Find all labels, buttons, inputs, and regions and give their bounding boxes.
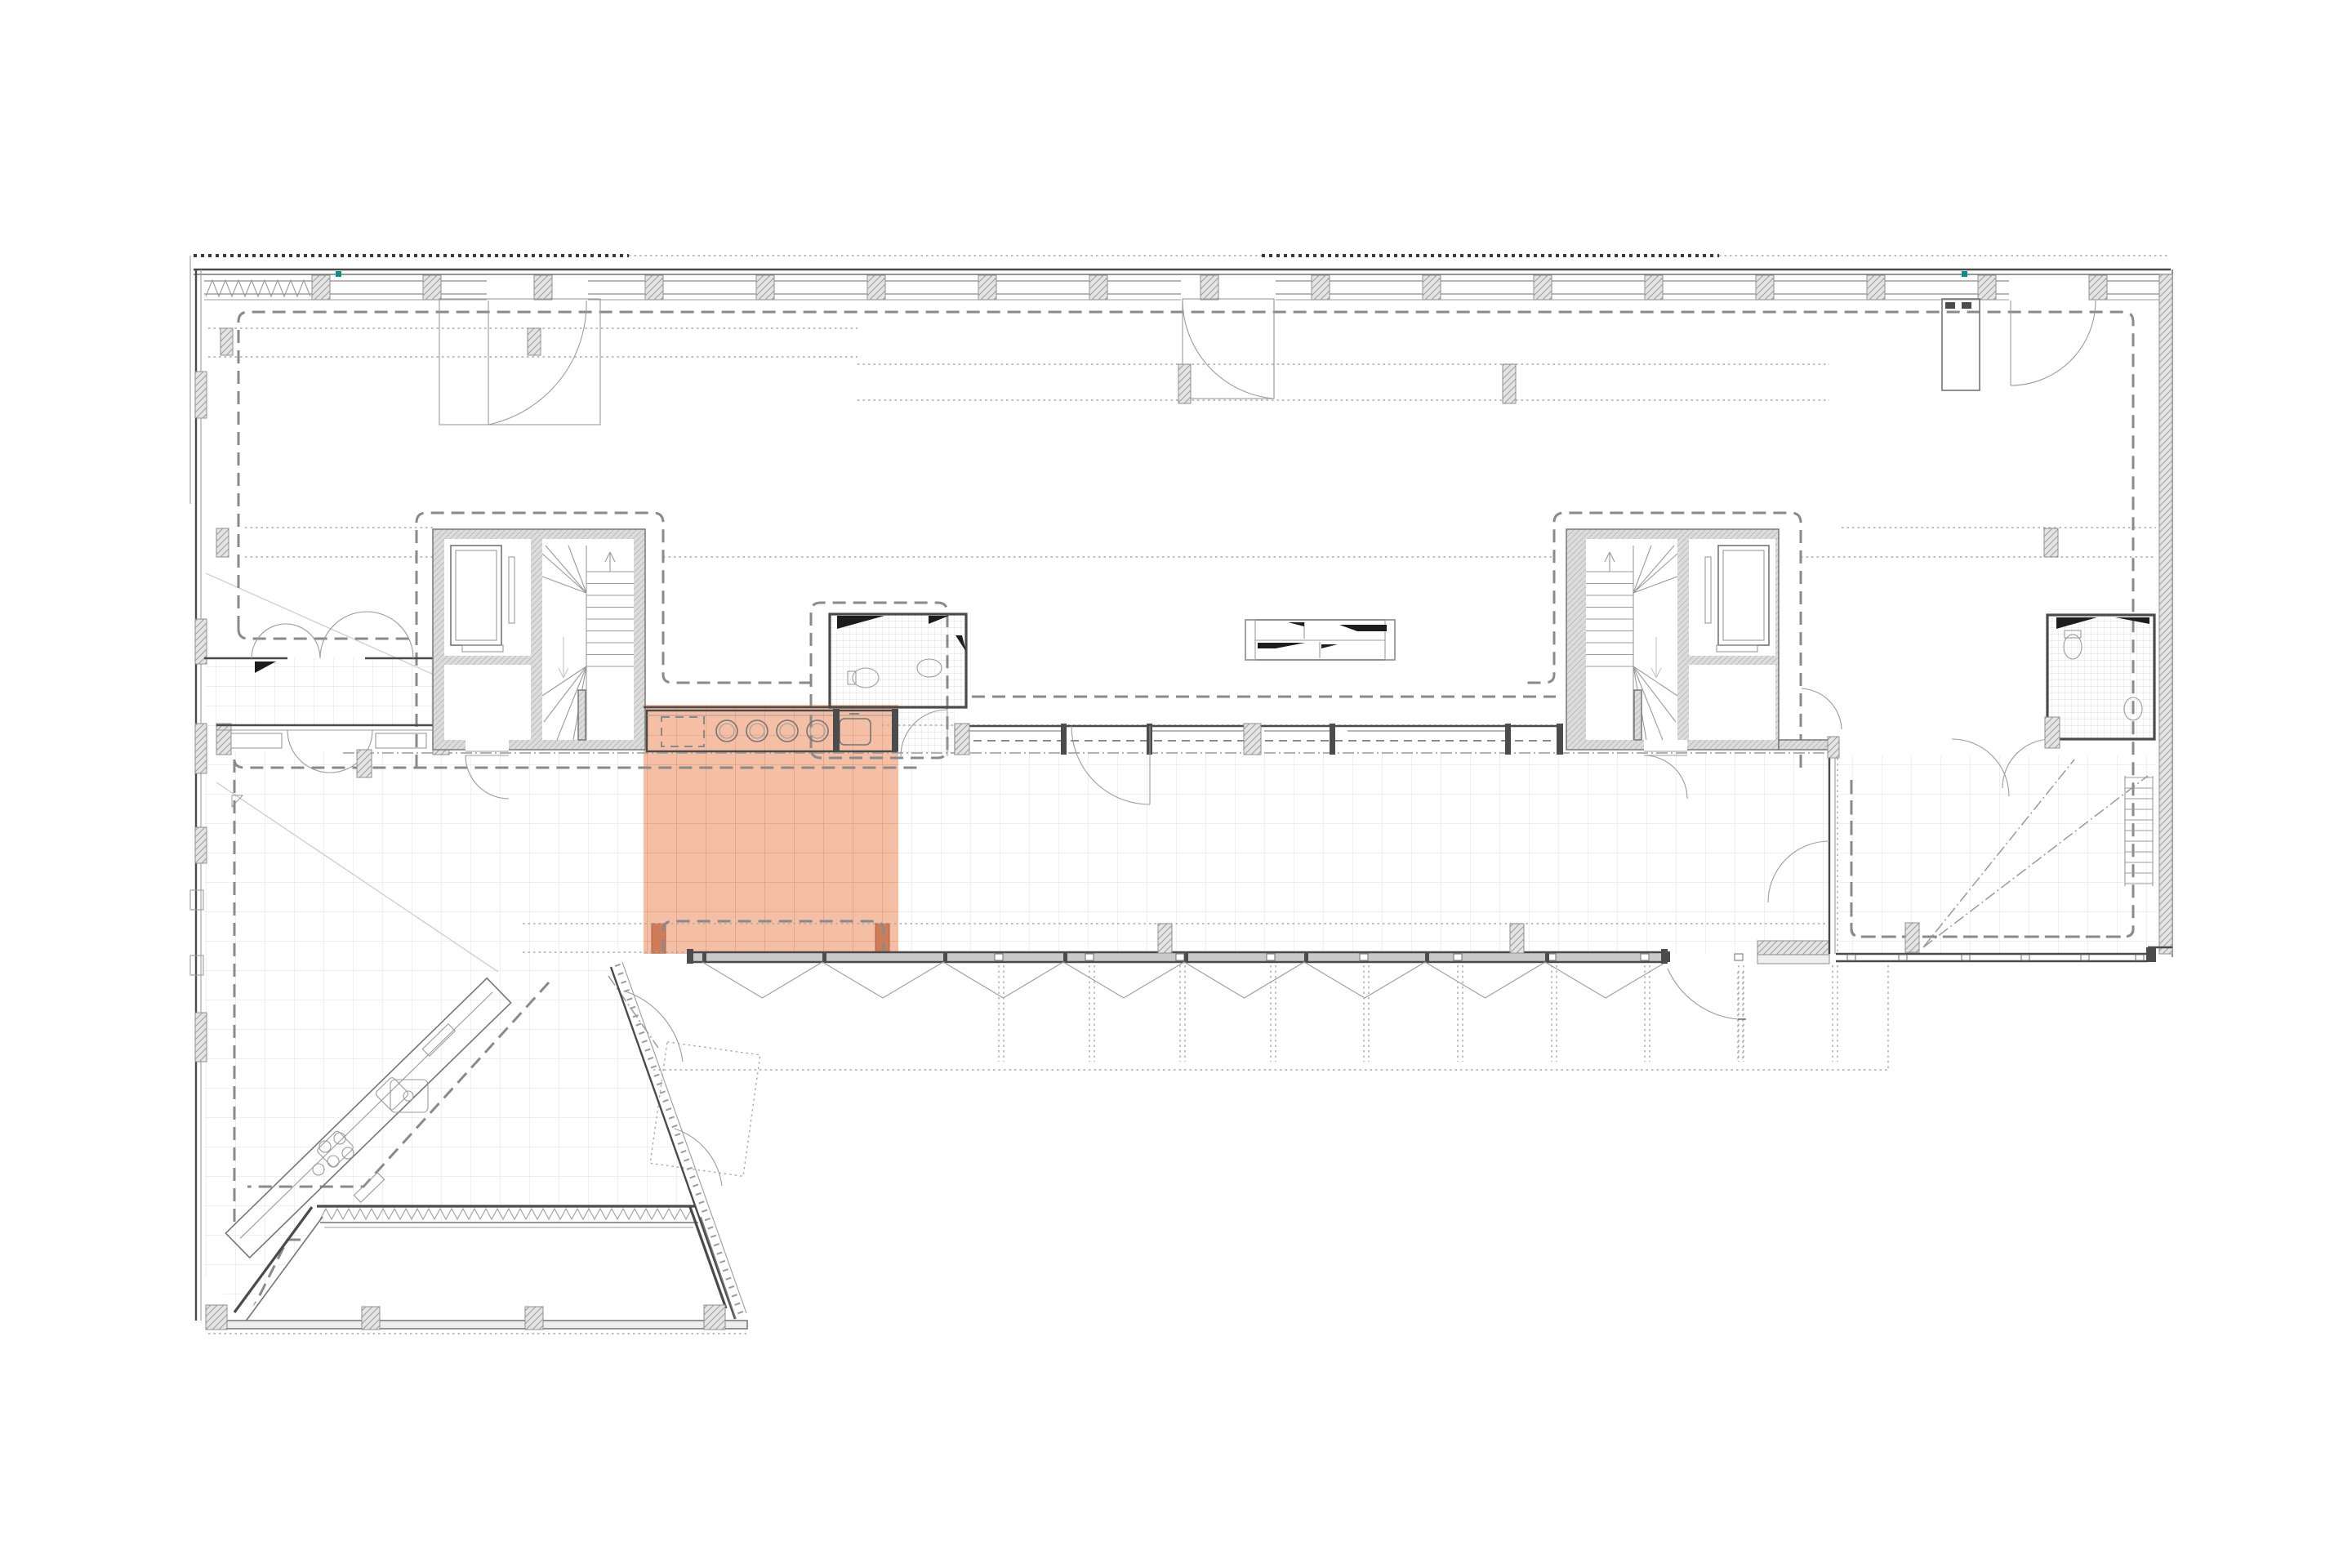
bathroom-tiles	[830, 614, 966, 706]
dashed-upper-left-return	[238, 629, 413, 639]
floor-plan-canvas	[0, 0, 2352, 1568]
terrace-column-1	[362, 1307, 380, 1330]
terrace-south-wall	[214, 1321, 747, 1329]
east-elevator-shaft	[1689, 539, 1775, 656]
teal-survey-marker	[336, 271, 341, 277]
sliding-door-pocket-2	[376, 733, 426, 748]
entry-vestibules	[439, 299, 2096, 425]
balcony-privacy-screens	[999, 965, 1837, 1062]
right-terrace-tiles	[1837, 755, 2156, 954]
sliding-door-pocket-1	[231, 733, 282, 748]
door-swing-up-2	[320, 612, 413, 658]
highlight-grid	[644, 705, 898, 954]
entry-door-swing-east	[2011, 301, 2096, 385]
highlight-area-group	[644, 705, 898, 954]
terrace-corner-column	[206, 1305, 227, 1330]
east-stair-room	[1586, 539, 1677, 740]
teal-survey-marker	[1962, 271, 1967, 277]
west-elevator-shaft	[444, 539, 531, 656]
entry-door-swing-west	[488, 301, 586, 425]
west-core-door-gap	[465, 740, 509, 751]
door-swing-up-1	[252, 624, 320, 658]
terrace-floor	[245, 1223, 724, 1316]
vestibule-mid	[1183, 299, 1274, 399]
floor-plan-drawing	[0, 0, 2352, 1568]
terrace-column-3	[704, 1305, 725, 1330]
folding-door-swings	[702, 962, 1666, 998]
east-hall-door-swing	[1802, 688, 1842, 729]
terrace-column-2	[525, 1307, 543, 1330]
planter-base	[1757, 955, 1829, 964]
balcony-door-swing	[1668, 969, 1738, 1019]
west-corridor-tiles	[206, 658, 448, 727]
west-core-lobby	[444, 665, 531, 740]
planter-hatch	[1757, 941, 1829, 955]
south-facade	[690, 941, 2172, 1062]
vestibule-west	[439, 299, 600, 425]
west-stair-room	[542, 539, 634, 740]
east-core-door-gap	[1644, 740, 1687, 751]
entry-door-swing-mid	[1183, 301, 1274, 399]
east-core-lobby	[1689, 665, 1775, 740]
